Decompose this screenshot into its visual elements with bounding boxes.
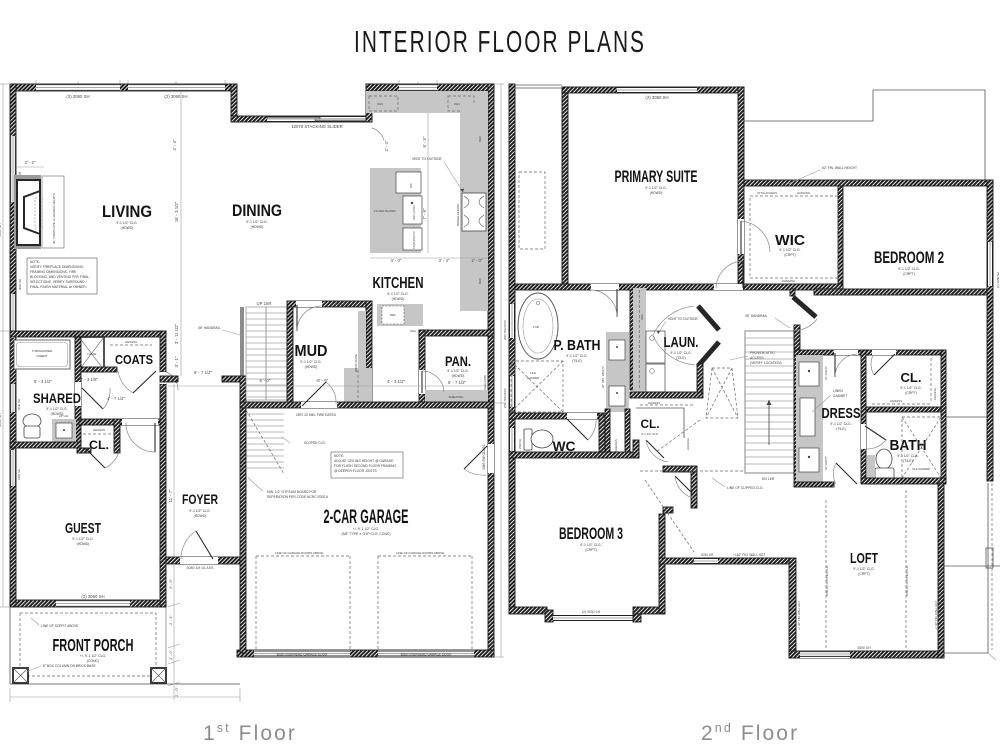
svg-text:SINK w/DISP: SINK w/DISP	[413, 205, 416, 220]
svg-text:2040 SH: 2040 SH	[17, 399, 21, 410]
svg-text:DW: DW	[409, 183, 413, 188]
svg-text:3' - 4": 3' - 4"	[439, 258, 450, 263]
svg-text:9'-1 1/2" CLG.: 9'-1 1/2" CLG.	[779, 248, 800, 252]
svg-text:INTERIOR FLOOR PLANS: INTERIOR FLOOR PLANS	[354, 24, 646, 59]
svg-text:ATTIC ACCESS: ATTIC ACCESS	[757, 191, 777, 195]
svg-text:ADJUST CEILING HEIGHT @ GARAGE: ADJUST CEILING HEIGHT @ GARAGE	[334, 459, 394, 463]
svg-text:DRESS: DRESS	[822, 405, 861, 422]
svg-text:SHELVING: SHELVING	[449, 395, 465, 399]
svg-text:36" HANDRAIL: 36" HANDRAIL	[198, 326, 221, 330]
svg-text:2-CAR GARAGE: 2-CAR GARAGE	[324, 507, 409, 528]
svg-text:3030 SH: 3030 SH	[701, 553, 714, 557]
svg-text:SEPERATION PER CODE NCRC R302.: SEPERATION PER CODE NCRC R302.6	[267, 495, 328, 499]
svg-text:PRIMARY SUITE: PRIMARY SUITE	[615, 168, 698, 186]
svg-text:LINE OF CLIPPED CLG.: LINE OF CLIPPED CLG.	[905, 565, 909, 596]
svg-text:9'-1 1/2" CLG.: 9'-1 1/2" CLG.	[641, 432, 659, 436]
svg-text:3060 SH: 3060 SH	[0, 223, 2, 237]
svg-text:(2) 3060 SH: (2) 3060 SH	[164, 94, 187, 99]
svg-text:LINE OF GARAGE DOORS ABOVE: LINE OF GARAGE DOORS ABOVE	[396, 551, 444, 555]
svg-text:(TILE): (TILE)	[836, 427, 845, 431]
svg-text:DROP ZONE: DROP ZONE	[354, 354, 358, 372]
svg-text:(CRPT): (CRPT)	[585, 548, 597, 552]
svg-text:CHASE: CHASE	[87, 352, 97, 356]
svg-text:9'-1 1/2" CLG.: 9'-1 1/2" CLG.	[246, 220, 267, 224]
svg-text:5' - 7 1/2": 5' - 7 1/2"	[448, 380, 467, 385]
svg-text:2' - 4": 2' - 4"	[172, 139, 177, 150]
svg-text:VENT TO OUTSIDE: VENT TO OUTSIDE	[668, 317, 698, 321]
svg-text:KITCHEN: KITCHEN	[373, 275, 424, 292]
svg-text:9'-1 1/2" CLG.: 9'-1 1/2" CLG.	[853, 567, 874, 571]
svg-text:LINE OF CLIPPED CLG.: LINE OF CLIPPED CLG.	[825, 565, 829, 596]
svg-text:FRONT PORCH: FRONT PORCH	[53, 635, 134, 655]
svg-text:62" FIN. WALL HEIGHT: 62" FIN. WALL HEIGHT	[822, 166, 857, 170]
svg-text:CABINET: CABINET	[833, 394, 847, 398]
svg-text:(2) 3030 SH: (2) 3030 SH	[582, 610, 601, 614]
svg-text:MUD: MUD	[295, 343, 328, 360]
svg-text:(TILE): (TILE)	[903, 459, 912, 463]
svg-text:9'-1 1/2" CLG.: 9'-1 1/2" CLG.	[447, 369, 468, 373]
svg-text:9'-1 1/2" CLG.: 9'-1 1/2" CLG.	[116, 221, 137, 225]
svg-text:4' - 0": 4' - 0"	[391, 258, 402, 263]
svg-text:3060 SH: 3060 SH	[18, 279, 22, 290]
svg-text:(CRPT): (CRPT)	[784, 253, 796, 257]
svg-text:(2) 3050 SH: (2) 3050 SH	[996, 272, 1000, 288]
svg-text:DINING: DINING	[232, 201, 282, 220]
svg-text:2870 20 MIN. FIRE RATED: 2870 20 MIN. FIRE RATED	[296, 413, 337, 417]
svg-text:(HDWD): (HDWD)	[77, 542, 90, 546]
svg-text:4' - 3 1/2": 4' - 3 1/2"	[387, 379, 406, 384]
svg-text:ACCESS: ACCESS	[750, 356, 764, 360]
svg-text:42" VANITY: 42" VANITY	[824, 366, 828, 380]
svg-text:NOTE:: NOTE:	[30, 260, 40, 264]
svg-text:(VERIFY LOCATION): (VERIFY LOCATION)	[750, 361, 782, 365]
svg-text:TILE SHOWER: TILE SHOWER	[912, 467, 930, 471]
svg-text:9'-1 1/2" CLG.: 9'-1 1/2" CLG.	[580, 543, 601, 547]
svg-text:TUB: TUB	[533, 325, 539, 329]
svg-text:TILE: TILE	[530, 371, 536, 375]
svg-text:INSERT: INSERT	[37, 354, 48, 358]
svg-text:-8' - 6": -8' - 6"	[316, 378, 329, 383]
svg-text:RANGE w/HOOD: RANGE w/HOOD	[456, 204, 460, 226]
svg-text:(2) 3060 SH: (2) 3060 SH	[81, 594, 104, 599]
svg-text:COATS: COATS	[115, 352, 153, 367]
svg-text:HANGING: HANGING	[125, 340, 137, 344]
svg-text:9'-1 1/2" CLG.: 9'-1 1/2" CLG.	[830, 422, 851, 426]
svg-text:SELECTIONS. VERIFY SURROUND /: SELECTIONS. VERIFY SURROUND /	[30, 280, 86, 284]
svg-text:(HDWD): (HDWD)	[194, 514, 207, 518]
svg-text:(CONC): (CONC)	[87, 659, 99, 663]
svg-text:BEDROOM 3: BEDROOM 3	[559, 525, 623, 543]
svg-text:OHC: OHC	[454, 102, 460, 106]
svg-text:OHC: OHC	[478, 278, 482, 284]
svg-text:2' - 0": 2' - 0"	[175, 687, 179, 697]
svg-text:6' - 7 1/2": 6' - 7 1/2"	[194, 370, 213, 375]
svg-text:9'-1 1/2" CLG.: 9'-1 1/2" CLG.	[189, 509, 210, 513]
svg-text:3030 TRANSOM: 3030 TRANSOM	[503, 321, 507, 340]
svg-text:SLOPED CLG.: SLOPED CLG.	[304, 441, 326, 445]
svg-text:MIN. 1/2" GYPSUM BOARD FOR: MIN. 1/2" GYPSUM BOARD FOR	[267, 490, 317, 494]
svg-text:CL.: CL.	[901, 370, 922, 385]
svg-text:9'-1 1/2" CLG.: 9'-1 1/2" CLG.	[566, 354, 587, 358]
svg-text:(HDWD): (HDWD)	[121, 226, 134, 230]
svg-text:SHOWER: SHOWER	[527, 376, 540, 380]
svg-text:9'-1 1/2" CLG.: 9'-1 1/2" CLG.	[72, 537, 93, 541]
svg-text:36" FIREPLACE w/ RAISED HEARTH: 36" FIREPLACE w/ RAISED HEARTH	[52, 193, 56, 244]
svg-text:SHELVES: SHELVES	[614, 439, 618, 452]
svg-text:OHC: OHC	[410, 329, 416, 333]
svg-text:2' - 0": 2' - 0"	[169, 650, 173, 660]
svg-text:9'-1 1/2" CLG.: 9'-1 1/2" CLG.	[46, 407, 67, 411]
svg-text:9'-1 1/2" CLG.: 9'-1 1/2" CLG.	[670, 351, 691, 355]
svg-text:OHC: OHC	[478, 136, 482, 142]
svg-text:9'-1 1/2" CLG.: 9'-1 1/2" CLG.	[387, 292, 408, 296]
svg-text:BATH: BATH	[890, 437, 927, 454]
svg-text:9'-1 1/2" CLG.: 9'-1 1/2" CLG.	[645, 186, 666, 190]
svg-text:+/-62" FIN. WALL HGT.: +/-62" FIN. WALL HGT.	[733, 553, 766, 557]
svg-text:(2) 3060 SH: (2) 3060 SH	[66, 94, 89, 99]
svg-text:DN 16R: DN 16R	[762, 477, 775, 481]
svg-text:HANGING: HANGING	[933, 388, 937, 400]
svg-text:WIC: WIC	[775, 233, 806, 249]
svg-text:12070 STACKING SLIDER: 12070 STACKING SLIDER	[291, 124, 343, 129]
svg-text:NOTE:: NOTE:	[334, 454, 344, 458]
svg-text:VENT TO OUTSIDE: VENT TO OUTSIDE	[412, 157, 442, 161]
svg-text:(CRPT): (CRPT)	[905, 391, 917, 395]
svg-text:16' - 3 1/2": 16' - 3 1/2"	[174, 201, 179, 222]
svg-text:LOFT: LOFT	[850, 550, 878, 567]
svg-text:11' - 7": 11' - 7"	[168, 489, 173, 502]
svg-text:PAN.: PAN.	[445, 353, 471, 369]
svg-text:9'-1 1/2" CLG.: 9'-1 1/2" CLG.	[898, 267, 919, 271]
svg-text:HANGING: HANGING	[890, 399, 902, 403]
svg-text:FOYER: FOYER	[182, 491, 218, 507]
svg-text:3080 3/4 GLASS: 3080 3/4 GLASS	[187, 566, 215, 570]
svg-text:TUB/SHOWER: TUB/SHOWER	[32, 349, 53, 353]
svg-text:HANGING: HANGING	[782, 279, 795, 283]
svg-text:3' - 11 1/2": 3' - 11 1/2"	[174, 323, 179, 344]
svg-text:FRAMING DIMENSIONS, FIRE: FRAMING DIMENSIONS, FIRE	[30, 270, 77, 274]
svg-text:3' - 1": 3' - 1"	[174, 356, 179, 367]
svg-text:36" HANDRAIL: 36" HANDRAIL	[745, 314, 768, 318]
svg-text:OHC: OHC	[377, 102, 383, 106]
svg-text:CL.: CL.	[89, 438, 109, 452]
svg-text:6' - 5": 6' - 5"	[422, 136, 427, 147]
svg-text:LAUN.: LAUN.	[664, 335, 699, 351]
svg-text:2450 SH: 2450 SH	[17, 469, 21, 480]
svg-text:UP 16R: UP 16R	[257, 301, 272, 306]
svg-text:4' - 7 1/2": 4' - 7 1/2"	[107, 396, 126, 401]
svg-text:3062-E: 3062-E	[335, 302, 347, 306]
svg-text:LINE OF CLIPPED CLG.: LINE OF CLIPPED CLG.	[727, 486, 764, 490]
svg-text:3080 SW GLASS: 3080 SW GLASS	[482, 444, 486, 470]
svg-text:SHARED: SHARED	[33, 391, 81, 406]
svg-text:HANGING: HANGING	[686, 438, 690, 450]
svg-text:24" LAV.: 24" LAV.	[59, 414, 69, 418]
svg-text:(HDWD): (HDWD)	[452, 374, 465, 378]
svg-text:CL.: CL.	[641, 417, 660, 431]
svg-text:(5/8" TYPE X GYP CLG. CONC): (5/8" TYPE X GYP CLG. CONC)	[342, 532, 391, 536]
svg-text:FINAL FINISH MATERIAL w/ OWNER: FINAL FINISH MATERIAL w/ OWNER.	[30, 285, 87, 289]
svg-text:6' - 0": 6' - 0"	[260, 378, 271, 383]
svg-text:BEDROOM 2: BEDROOM 2	[874, 249, 944, 267]
svg-text:BLOCKING, AND VENTING PER FINA: BLOCKING, AND VENTING PER FINAL	[30, 275, 89, 279]
svg-text:2' - 3 1/8": 2' - 3 1/8"	[80, 377, 99, 382]
svg-text:7' - 6": 7' - 6"	[422, 208, 427, 219]
svg-text:60" DBL. VANITY: 60" DBL. VANITY	[601, 366, 605, 388]
svg-text:(CRPT): (CRPT)	[903, 272, 915, 276]
svg-text:(HDWD): (HDWD)	[251, 225, 264, 229]
svg-text:(TILE): (TILE)	[676, 356, 685, 360]
svg-text:GUEST: GUEST	[65, 520, 101, 537]
svg-text:9'-1 1/2" CLG.: 9'-1 1/2" CLG.	[900, 386, 921, 390]
svg-text:2' - 4": 2' - 4"	[169, 615, 173, 625]
svg-text:9'-1 1/2" CLG.: 9'-1 1/2" CLG.	[300, 360, 321, 364]
svg-text:P. BATH: P. BATH	[554, 338, 601, 354]
svg-text:FLUSH ISLAND: FLUSH ISLAND	[374, 209, 396, 213]
svg-text:HANGING: HANGING	[797, 191, 810, 195]
svg-text:2' - 0": 2' - 0"	[472, 258, 483, 263]
svg-text:(TILE): (TILE)	[572, 359, 581, 363]
svg-text:8" BOX COLUMN ON BRICK BASE: 8" BOX COLUMN ON BRICK BASE	[43, 664, 96, 668]
svg-text:PROVIDE ATTIC: PROVIDE ATTIC	[750, 351, 775, 355]
svg-text:(HDWD): (HDWD)	[650, 191, 663, 195]
svg-text:VERIFY FIREPLACE DIMENSIONS,: VERIFY FIREPLACE DIMENSIONS,	[30, 265, 84, 269]
svg-text:HANGING: HANGING	[840, 235, 844, 248]
svg-text:(2) 3050 SH: (2) 3050 SH	[645, 95, 668, 100]
svg-text:8080 OVERHEAD GARAGE DOOR: 8080 OVERHEAD GARAGE DOOR	[401, 653, 453, 657]
svg-text:2040 SH: 2040 SH	[0, 413, 2, 427]
svg-text:OHC: OHC	[640, 314, 644, 320]
svg-text:@ DEEPER FLOOR JOISTS: @ DEEPER FLOOR JOISTS	[334, 469, 377, 473]
svg-text:3050 SH: 3050 SH	[857, 646, 871, 650]
svg-text:+/- 9'-1 1/2" CLG.: +/- 9'-1 1/2" CLG.	[353, 527, 379, 531]
svg-text:(CRPT): (CRPT)	[858, 572, 870, 576]
svg-text:HANGING: HANGING	[648, 401, 660, 405]
svg-text:+/- 9'-1 1/2" CLG.: +/- 9'-1 1/2" CLG.	[80, 654, 106, 658]
svg-text:42" VANITY: 42" VANITY	[824, 456, 828, 470]
svg-text:2' - 2": 2' - 2"	[25, 160, 36, 165]
svg-text:LINE OF SOFFIT ABOVE: LINE OF SOFFIT ABOVE	[41, 624, 79, 628]
svg-text:TRASH/RECYC: TRASH/RECYC	[413, 231, 416, 249]
svg-text:+/- 36" FIN. WALL HGT.: +/- 36" FIN. WALL HGT.	[797, 600, 801, 630]
svg-text:LINEN: LINEN	[833, 389, 843, 393]
svg-text:LINE OF GARAGE DOORS ABOVE: LINE OF GARAGE DOORS ABOVE	[275, 551, 323, 555]
svg-text:LIVING: LIVING	[102, 202, 152, 221]
svg-text:2030 SH: 2030 SH	[518, 439, 522, 449]
svg-text:SHELVING: SHELVING	[483, 374, 487, 390]
svg-text:5' - 4 1/2": 5' - 4 1/2"	[34, 379, 53, 384]
svg-text:FOR FLUSH SECOND FLOOR FRAMING: FOR FLUSH SECOND FLOOR FRAMING	[334, 464, 397, 468]
svg-text:+/- 46" FIN. WALL HGT.: +/- 46" FIN. WALL HGT.	[934, 600, 938, 630]
svg-text:REF.: REF.	[390, 313, 396, 317]
svg-text:HANGING: HANGING	[93, 428, 105, 432]
svg-text:4' - 0": 4' - 0"	[169, 579, 173, 589]
svg-text:2030 TRANSOM: 2030 TRANSOM	[503, 389, 507, 408]
svg-text:(HDWD): (HDWD)	[305, 365, 318, 369]
svg-text:8080 OVERHEAD GARAGE DOOR: 8080 OVERHEAD GARAGE DOOR	[277, 653, 329, 657]
svg-text:2' - 4": 2' - 4"	[384, 140, 389, 151]
svg-text:(HDWD): (HDWD)	[392, 297, 405, 301]
